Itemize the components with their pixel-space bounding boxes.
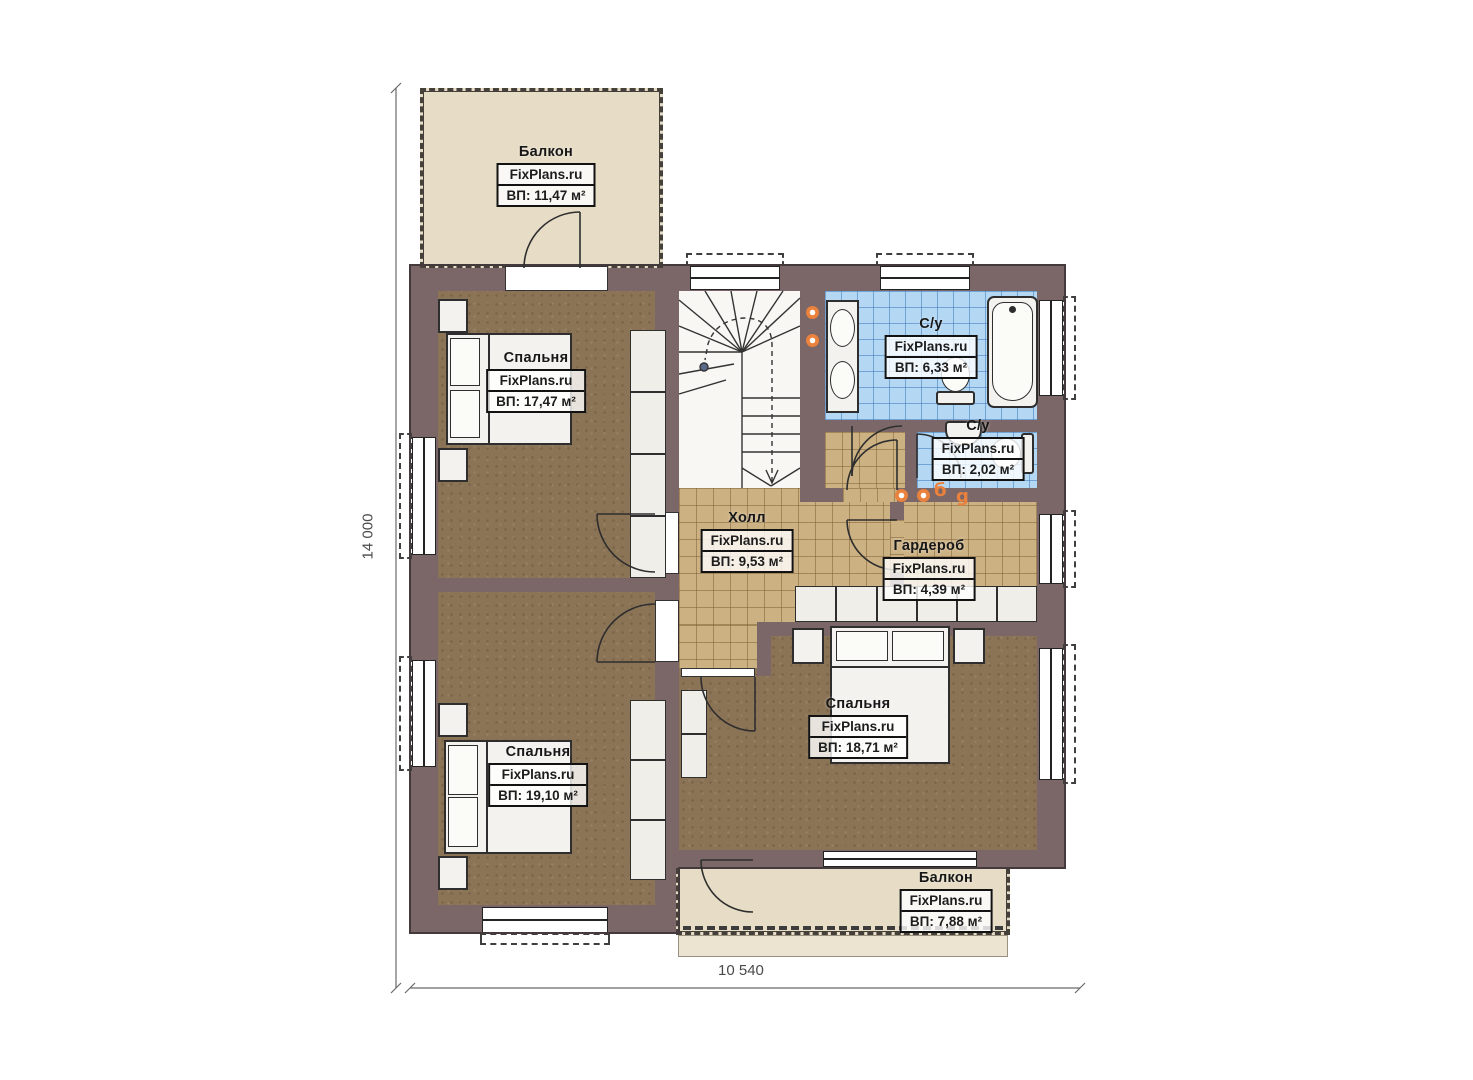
- wall-bathroom-divider: [905, 432, 917, 488]
- label-table: FixPlans.ru ВП: 6,33 м²: [885, 335, 978, 379]
- room-area: ВП: 19,10 м²: [490, 784, 586, 805]
- window-sill-top-stairs: [686, 253, 784, 266]
- closet: [630, 392, 666, 454]
- pillow: [448, 797, 478, 847]
- room-area: ВП: 7,88 м²: [902, 910, 991, 931]
- closet: [630, 760, 666, 820]
- window-bedroom-right-balcony: [823, 851, 977, 867]
- label-table: FixPlans.ru ВП: 9,53 м²: [701, 529, 794, 573]
- room-name: Спальня: [504, 350, 569, 366]
- door-opening-balcony-top: [505, 266, 608, 291]
- room-label-bathroom-small: С/у FixPlans.ru ВП: 2,02 м²: [932, 418, 1025, 481]
- orange-letter-g: g: [956, 486, 969, 507]
- watermark: FixPlans.ru: [488, 371, 584, 390]
- room-area: ВП: 11,47 м²: [499, 184, 594, 205]
- room-area: ВП: 18,71 м²: [810, 736, 906, 757]
- window-top-bathroom: [880, 266, 970, 290]
- label-table: FixPlans.ru ВП: 17,47 м²: [486, 369, 586, 413]
- hall-column-floor: [679, 625, 757, 668]
- window-left-bedroom-bl: [412, 660, 436, 767]
- room-label-wardrobe: Гардероб FixPlans.ru ВП: 4,39 м²: [883, 538, 976, 601]
- room-name: Спальня: [506, 744, 571, 760]
- label-table: FixPlans.ru ВП: 2,02 м²: [932, 437, 1025, 481]
- window-sill-right-bathroom: [1063, 296, 1076, 400]
- window-left-bedroom-tl: [412, 437, 436, 555]
- pillow: [892, 631, 944, 661]
- door-opening-hall-lobby: [843, 488, 897, 502]
- watermark: FixPlans.ru: [499, 165, 594, 184]
- dimension-left: 14 000: [359, 514, 376, 560]
- room-name: С/у: [919, 316, 942, 332]
- wall-lamp-icon: [806, 306, 819, 319]
- nightstand: [953, 628, 985, 664]
- room-label-hall: Холл FixPlans.ru ВП: 9,53 м²: [701, 510, 794, 573]
- window-sill-bottom-bedroom-bl: [480, 933, 610, 945]
- room-name: Холл: [728, 510, 766, 526]
- wall-lamp-icon: [895, 489, 908, 502]
- wardrobe-unit: [795, 586, 836, 622]
- sink: [830, 309, 855, 347]
- bathtub-basin: [992, 302, 1033, 401]
- shelf: [681, 690, 707, 734]
- staircase-floor: [679, 291, 800, 488]
- closet: [630, 820, 666, 880]
- wardrobe-unit: [836, 586, 877, 622]
- room-name: Балкон: [519, 144, 573, 160]
- nightstand: [438, 299, 468, 333]
- label-table: FixPlans.ru ВП: 4,39 м²: [883, 557, 976, 601]
- closet: [630, 330, 666, 392]
- room-area: ВП: 4,39 м²: [885, 578, 974, 599]
- door-threshold-bedroom-right: [681, 668, 755, 677]
- watermark: FixPlans.ru: [490, 765, 586, 784]
- closet: [630, 700, 666, 760]
- room-area: ВП: 9,53 м²: [703, 550, 792, 571]
- room-label-bathroom-main: С/у FixPlans.ru ВП: 6,33 м²: [885, 316, 978, 379]
- watermark: FixPlans.ru: [885, 559, 974, 578]
- room-area: ВП: 17,47 м²: [488, 390, 584, 411]
- nightstand: [438, 856, 468, 890]
- pillow: [448, 745, 478, 795]
- room-label-balcony-bottom: Балкон FixPlans.ru ВП: 7,88 м²: [900, 870, 993, 933]
- watermark: FixPlans.ru: [902, 891, 991, 910]
- bathtub-drain: [1009, 306, 1016, 313]
- wall-bathroom-south-a: [825, 420, 852, 432]
- closet: [630, 516, 666, 578]
- label-table: FixPlans.ru ВП: 19,10 м²: [488, 763, 588, 807]
- window-sill-right-wardrobe: [1063, 510, 1076, 588]
- nightstand: [438, 448, 468, 482]
- label-table: FixPlans.ru ВП: 11,47 м²: [497, 163, 596, 207]
- nightstand: [792, 628, 824, 664]
- window-right-bathroom: [1039, 300, 1063, 396]
- window-top-stairs: [690, 266, 780, 290]
- window-sill-left-bedroom-bl: [399, 656, 412, 771]
- wall-hall-north-a: [800, 488, 843, 502]
- window-sill-top-bathroom: [876, 253, 974, 266]
- sink: [830, 361, 855, 399]
- toilet-tank: [936, 391, 975, 405]
- window-sill-left-bedroom-tl: [399, 433, 412, 559]
- watermark: FixPlans.ru: [703, 531, 792, 550]
- room-name: Гардероб: [894, 538, 965, 554]
- wall-lamp-icon: [806, 334, 819, 347]
- window-right-bedroom: [1039, 648, 1063, 780]
- window-sill-right-bedroom: [1063, 644, 1076, 784]
- room-name: Спальня: [826, 696, 891, 712]
- wall-hall-wardrobe-stub-a: [890, 502, 904, 520]
- window-right-wardrobe: [1039, 514, 1063, 584]
- label-table: FixPlans.ru ВП: 7,88 м²: [900, 889, 993, 933]
- room-label-bedroom-bottom-left: Спальня FixPlans.ru ВП: 19,10 м²: [488, 744, 588, 807]
- door-opening-bedroom-bl: [655, 600, 679, 662]
- watermark: FixPlans.ru: [887, 337, 976, 356]
- orange-letter-b: б: [934, 480, 947, 501]
- pillow: [836, 631, 888, 661]
- room-label-balcony-top: Балкон FixPlans.ru ВП: 11,47 м²: [497, 144, 596, 207]
- pillow: [450, 390, 480, 438]
- room-area: ВП: 6,33 м²: [887, 356, 976, 377]
- blanket-edge: [832, 666, 948, 668]
- room-name: Балкон: [919, 870, 973, 886]
- room-name: С/у: [966, 418, 989, 434]
- wall-hall-column-east: [757, 636, 771, 676]
- balcony-lower-strip: [678, 935, 1008, 957]
- wardrobe-unit: [997, 586, 1037, 622]
- pillow: [450, 338, 480, 386]
- dimension-bottom: 10 540: [718, 962, 764, 979]
- nightstand: [438, 703, 468, 737]
- room-label-bedroom-right: Спальня FixPlans.ru ВП: 18,71 м²: [808, 696, 908, 759]
- shelf: [681, 734, 707, 778]
- label-table: FixPlans.ru ВП: 18,71 м²: [808, 715, 908, 759]
- watermark: FixPlans.ru: [934, 439, 1023, 458]
- room-label-bedroom-top-left: Спальня FixPlans.ru ВП: 17,47 м²: [486, 350, 586, 413]
- room-area: ВП: 2,02 м²: [934, 458, 1023, 479]
- wall-lamp-icon: [917, 489, 930, 502]
- floor-plan: б g Балкон FixPlans.ru ВП: 11,47 м² Спал…: [0, 0, 1473, 1080]
- window-bottom-bedroom-bl: [482, 907, 608, 933]
- closet: [630, 454, 666, 516]
- watermark: FixPlans.ru: [810, 717, 906, 736]
